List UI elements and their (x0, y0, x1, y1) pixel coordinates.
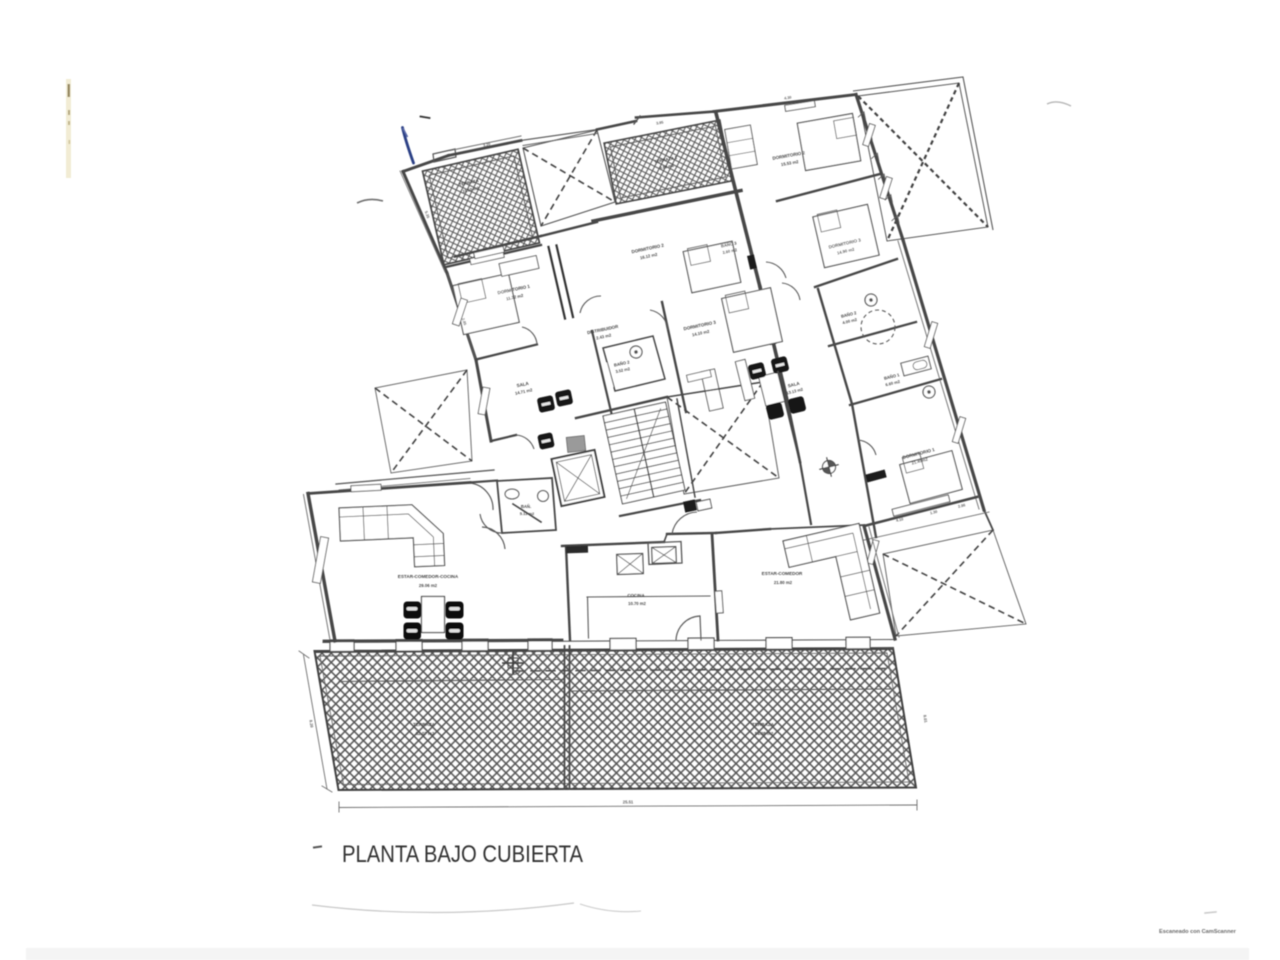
svg-text:10.70 m2: 10.70 m2 (628, 601, 646, 606)
svg-text:TERRAZA: TERRAZA (413, 722, 436, 727)
svg-text:5.11 m2: 5.11 m2 (520, 511, 535, 516)
svg-text:ESTAR-COMEDOR-COCINA: ESTAR-COMEDOR-COCINA (398, 574, 459, 579)
svg-text:25.51: 25.51 (623, 800, 634, 805)
svg-text:BAÑ.: BAÑ. (521, 504, 531, 509)
svg-text:52.07 m2: 52.07 m2 (416, 731, 435, 736)
svg-text:Escaneado con CamScanner: Escaneado con CamScanner (1159, 929, 1237, 935)
svg-text:21.80 m2: 21.80 m2 (774, 580, 793, 585)
svg-text:TERRAZA: TERRAZA (752, 722, 775, 727)
svg-text:COCINA: COCINA (627, 593, 645, 598)
svg-text:54.08 m2: 54.08 m2 (755, 731, 774, 736)
svg-text:ESTAR-COMEDOR: ESTAR-COMEDOR (762, 571, 803, 576)
svg-text:29.06 m2: 29.06 m2 (419, 583, 438, 588)
svg-text:PLANTA BAJO CUBIERTA: PLANTA BAJO CUBIERTA (342, 841, 583, 868)
